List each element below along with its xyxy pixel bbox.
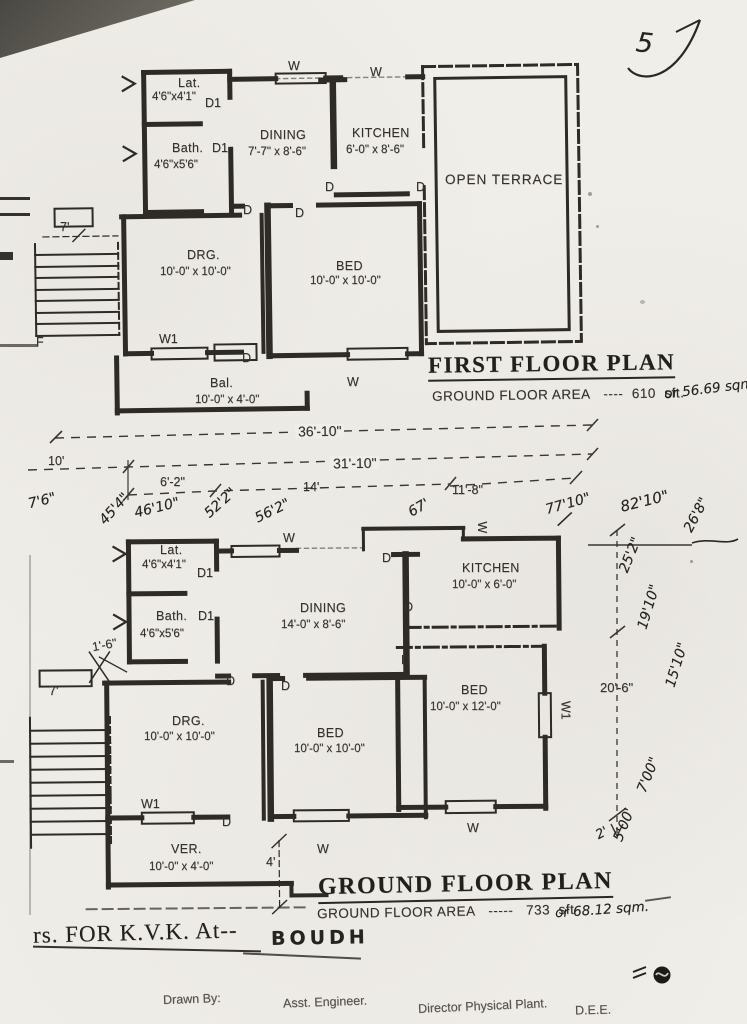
room-dims-dining-gf: 14'-0" x 8'-6" xyxy=(281,620,345,632)
room-label-dining-ff: DINING xyxy=(260,129,306,142)
stair-dim-gf: 7' xyxy=(49,685,58,698)
door-marker: D xyxy=(281,680,290,693)
ink-blot-mark xyxy=(628,958,684,992)
room-dims-lat-ff: 4'6"x4'1" xyxy=(152,92,196,104)
window-marker: W xyxy=(317,843,329,856)
window-marker: W xyxy=(288,60,300,73)
room-label-drg-ff: DRG. xyxy=(187,249,220,262)
room-dims-drg-ff: 10'-0" x 10'-0" xyxy=(160,267,231,279)
project-title-line: rs. FOR K.V.K. At-- xyxy=(33,918,238,946)
dim-total-width: 36'-10" xyxy=(295,424,345,439)
window-marker-w1-rotated: W1 xyxy=(559,701,572,720)
room-label-terrace-ff: OPEN TERRACE xyxy=(445,173,563,187)
ver-dim-gf: 4' xyxy=(266,856,275,869)
door-marker-d1: D1 xyxy=(198,610,214,623)
door-marker: D xyxy=(382,552,391,565)
stair-dim-ff: 7' xyxy=(60,221,69,234)
door-marker-d1: D1 xyxy=(212,142,228,155)
area-value: 733 xyxy=(526,902,550,917)
room-label-bed-right-gf: BED xyxy=(461,684,488,697)
door-marker: D xyxy=(416,181,425,194)
door-marker: D xyxy=(295,207,304,220)
signature-drawn-by: Drawn By: xyxy=(163,992,221,1007)
window-marker-w1: W1 xyxy=(141,798,160,811)
window-marker: W xyxy=(370,66,382,79)
area-label: GROUND FLOOR AREA xyxy=(317,903,476,921)
room-label-dining-gf: DINING xyxy=(300,602,346,615)
area-dashes: ----- xyxy=(488,903,513,918)
area-dashes: ---- xyxy=(603,386,623,401)
dim-sub1: 6'-2" xyxy=(160,476,185,489)
dim-sub3: 11'-8" xyxy=(452,484,483,497)
room-dims-kitchen-gf: 10'-0" x 6'-0" xyxy=(452,580,516,592)
room-dims-bath-ff: 4'6"x5'6" xyxy=(154,160,198,172)
scan-speckle xyxy=(640,300,645,304)
room-label-drg-gf: DRG. xyxy=(172,715,205,728)
window-marker-rotated: W xyxy=(476,521,489,533)
first-floor-area-handwritten: or 56.69 sqm xyxy=(664,378,747,402)
window-marker: W xyxy=(347,376,359,389)
dim-main-seg: 31'-10" xyxy=(330,456,380,471)
room-dims-kitchen-ff: 6'-0" x 8'-6" xyxy=(346,145,404,157)
project-title-underline xyxy=(33,946,261,953)
room-label-bath-gf: Bath. xyxy=(156,610,187,623)
ground-floor-title: GROUND FLOOR PLAN xyxy=(318,869,613,904)
project-location-handwritten: BOUDH xyxy=(271,928,369,949)
first-floor-title: FIRST FLOOR PLAN xyxy=(428,350,676,381)
signature-asst-engineer: Asst. Engineer. xyxy=(283,995,367,1010)
door-marker: D xyxy=(401,654,410,667)
first-floor-area-line: GROUND FLOOR AREA ---- 610 sft. xyxy=(432,386,685,403)
room-dims-bed-ff: 10'-0" x 10'-0" xyxy=(310,276,381,288)
room-label-bed-ff: BED xyxy=(336,260,363,273)
signature-dee: D.E.E. xyxy=(575,1004,611,1017)
room-dims-lat-gf: 4'6"x4'1" xyxy=(142,560,186,572)
door-marker: D xyxy=(243,204,252,217)
area-value: 610 xyxy=(632,386,656,401)
room-label-bed-gf: BED xyxy=(317,727,344,740)
door-marker-d1: D1 xyxy=(197,567,213,580)
window-marker: W xyxy=(283,532,295,545)
room-label-lat-ff: Lat. xyxy=(178,77,200,90)
room-dims-bed-right-gf: 10'-0" x 12'-0" xyxy=(430,702,501,714)
window-marker: W xyxy=(467,822,479,835)
dim-left-seg: 10' xyxy=(48,455,64,468)
cutoff-wall-fragment xyxy=(0,760,14,763)
cutoff-wall-fragment xyxy=(0,252,13,260)
signature-director-physical-plant: Director Physical Plant. xyxy=(418,997,548,1015)
door-marker: D xyxy=(325,181,334,194)
room-label-bal-ff: Bal. xyxy=(210,377,233,390)
area-label: GROUND FLOOR AREA xyxy=(432,387,591,404)
door-marker: D xyxy=(222,816,231,829)
room-dims-drg-gf: 10'-0" x 10'-0" xyxy=(144,732,215,744)
room-label-kitchen-ff: KITCHEN xyxy=(352,127,410,140)
room-dims-bal-ff: 10'-0" x 4'-0" xyxy=(195,395,259,407)
page-number-circle-stroke xyxy=(612,10,722,90)
room-dims-bath-gf: 4'6"x5'6" xyxy=(140,629,184,641)
dim-sub2: 14' xyxy=(303,481,319,494)
room-label-ver-gf: VER. xyxy=(171,843,202,856)
f-marker: F xyxy=(36,336,44,349)
room-label-lat-gf: Lat. xyxy=(160,544,182,557)
room-label-kitchen-gf: KITCHEN xyxy=(462,562,520,575)
door-marker: D xyxy=(226,675,235,688)
project-title-underline-extension xyxy=(243,952,361,959)
room-dims-ver-gf: 10'-0" x 4'-0" xyxy=(149,862,213,874)
scanned-floor-plan-page: 5 xyxy=(0,0,747,1024)
door-marker: D xyxy=(242,352,251,365)
room-dims-dining-ff: 7'-7" x 8'-6" xyxy=(248,147,306,159)
door-marker-d1: D1 xyxy=(205,97,221,110)
door-marker: D xyxy=(404,601,413,614)
room-dims-bed-gf: 10'-0" x 10'-0" xyxy=(294,744,365,756)
room-label-bath-ff: Bath. xyxy=(172,142,203,155)
window-marker-w1: W1 xyxy=(159,333,178,346)
